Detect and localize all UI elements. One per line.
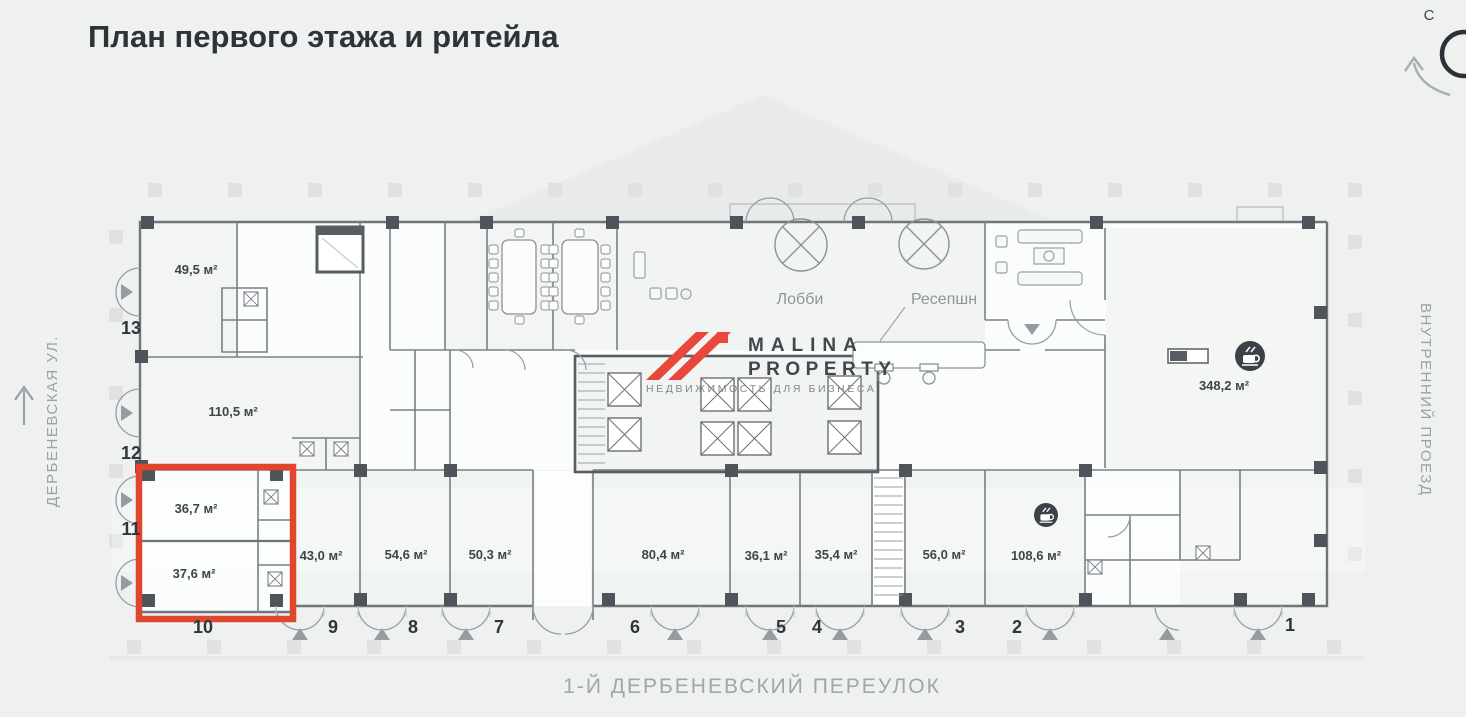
perimeter-column <box>1348 313 1362 327</box>
chair <box>549 245 558 254</box>
wall-column <box>1079 464 1092 477</box>
wall-column <box>725 593 738 606</box>
unit-number-10: 10 <box>193 617 213 637</box>
unit-area-6: 80,4 м² <box>642 547 686 562</box>
cafe-area: 348,2 м² <box>1199 378 1250 393</box>
coffee-cup-icon <box>1034 503 1058 527</box>
perimeter-column <box>287 640 301 654</box>
entrance-door-arc <box>901 606 925 630</box>
unit-number-1: 1 <box>1285 615 1295 635</box>
chair <box>549 287 558 296</box>
entrance-door-arc <box>1258 606 1282 630</box>
entrance-door-arc <box>116 413 140 437</box>
entrance-door-arc <box>675 606 699 630</box>
entrance-triangle <box>121 575 133 591</box>
unit-area-12: 110,5 м² <box>208 404 258 419</box>
entrance-door-arc <box>1026 606 1050 630</box>
chair <box>489 287 498 296</box>
wall-column <box>606 216 619 229</box>
perimeter-column <box>708 183 722 197</box>
chair <box>601 245 610 254</box>
wall-column <box>1302 216 1315 229</box>
entrance-door-arc <box>1155 606 1179 630</box>
floor-plan-canvas: План первого этажа и ритейла С ДЕРБЕНЕВС… <box>0 0 1466 717</box>
perimeter-column <box>109 464 123 478</box>
perimeter-column <box>109 230 123 244</box>
wall-column <box>135 350 148 363</box>
entrance-door-arc <box>358 606 382 630</box>
chair <box>515 316 524 324</box>
perimeter-column <box>927 640 941 654</box>
unit-area-8: 54,6 м² <box>385 547 429 562</box>
wall-column <box>444 464 457 477</box>
chair <box>489 301 498 310</box>
logo-square <box>717 332 728 343</box>
wall-column <box>141 216 154 229</box>
wall-column <box>1079 593 1092 606</box>
perimeter-column <box>1108 183 1122 197</box>
wall-column <box>602 593 615 606</box>
chair <box>489 259 498 268</box>
wall-column <box>480 216 493 229</box>
shaft-wall <box>317 227 363 235</box>
cafe-floor <box>1106 228 1327 468</box>
chair <box>489 245 498 254</box>
entrance-door-arc <box>1234 606 1258 630</box>
wall-column <box>1314 306 1327 319</box>
perimeter-column <box>788 183 802 197</box>
logo-line2: PROPERTY <box>748 359 897 380</box>
compass-icon: С <box>1405 7 1466 95</box>
perimeter-column <box>367 640 381 654</box>
wall-column <box>354 464 367 477</box>
street-label-left: ДЕРБЕНЕВСКАЯ УЛ. <box>44 335 61 507</box>
wall-column <box>386 216 399 229</box>
wall-column <box>1090 216 1103 229</box>
perimeter-column <box>308 183 322 197</box>
unit-area-5: 36,1 м² <box>745 548 789 563</box>
perimeter-column <box>948 183 962 197</box>
unit-area-3: 56,0 м² <box>923 547 967 562</box>
perimeter-column <box>1348 183 1362 197</box>
unit-area-9: 43,0 м² <box>300 548 344 563</box>
wall-column <box>899 464 912 477</box>
perimeter-column <box>847 640 861 654</box>
entrance-door-arc <box>442 606 466 630</box>
entrance-door-arc <box>533 606 593 634</box>
background-wedge <box>470 95 1054 221</box>
street-label-bottom: 1-Й ДЕРБЕНЕВСКИЙ ПЕРЕУЛОК <box>563 674 941 698</box>
street-label-right: ВНУТРЕННИЙ ПРОЕЗД <box>1417 303 1435 496</box>
perimeter-column <box>767 640 781 654</box>
wall-column <box>142 594 155 607</box>
chair <box>575 316 584 324</box>
perimeter-column <box>1348 469 1362 483</box>
wall-column <box>354 593 367 606</box>
perimeter-column <box>1327 640 1341 654</box>
floor-plan: 49,5 м² 110,5 м² 36,7 м² 37,6 м² 43,0 м²… <box>109 183 1365 660</box>
compass-north-label: С <box>1424 7 1435 24</box>
unit-number-12: 12 <box>121 443 141 463</box>
wall-column <box>1314 461 1327 474</box>
wall-column <box>444 593 457 606</box>
entrance-door-arc <box>1050 606 1074 630</box>
wall-column <box>1302 593 1315 606</box>
perimeter-column <box>468 183 482 197</box>
coffee-cup-icon <box>1235 341 1265 371</box>
street-arrow-up <box>15 387 33 425</box>
entrance-door-arc <box>925 606 949 630</box>
chair <box>601 259 610 268</box>
perimeter-column <box>1087 640 1101 654</box>
perimeter-column <box>228 183 242 197</box>
conference-table <box>562 240 598 314</box>
entrance-door-arc <box>382 606 406 630</box>
chair <box>549 273 558 282</box>
unit-area-10: 37,6 м² <box>173 566 217 581</box>
chair <box>489 273 498 282</box>
logo-tagline: НЕДВИЖИМОСТЬ ДЛЯ БИЗНЕСА <box>646 383 876 395</box>
lobby-floor <box>617 223 985 350</box>
perimeter-column <box>447 640 461 654</box>
perimeter-column <box>388 183 402 197</box>
unit-number-4: 4 <box>812 617 822 637</box>
chair <box>515 229 524 237</box>
wall-column <box>725 464 738 477</box>
chair <box>549 301 558 310</box>
entrance-door-arc <box>116 268 140 292</box>
unit-number-8: 8 <box>408 617 418 637</box>
unit-number-2: 2 <box>1012 617 1022 637</box>
unit-area-13: 49,5 м² <box>175 262 219 277</box>
unit-number-3: 3 <box>955 617 965 637</box>
entrance-triangle <box>121 405 133 421</box>
wall-column <box>1234 593 1247 606</box>
wall-column <box>852 216 865 229</box>
entrance-door-arc <box>651 606 675 630</box>
page-title: План первого этажа и ритейла <box>88 19 559 54</box>
perimeter-column <box>548 183 562 197</box>
chair <box>601 273 610 282</box>
unit-area-4: 35,4 м² <box>815 547 859 562</box>
unit-number-7: 7 <box>494 617 504 637</box>
entrance-triangle <box>121 284 133 300</box>
entrance-door-arc <box>840 606 864 630</box>
perimeter-column <box>1167 640 1181 654</box>
right-canopy <box>1237 207 1283 222</box>
unit-number-9: 9 <box>328 617 338 637</box>
wall-column <box>270 594 283 607</box>
entrance-door-arc <box>300 606 324 630</box>
chair <box>575 229 584 237</box>
cafe-counter <box>1168 349 1208 363</box>
perimeter-column <box>148 183 162 197</box>
entrance-door-arc <box>466 606 490 630</box>
perimeter-column <box>607 640 621 654</box>
perimeter-column <box>1247 640 1261 654</box>
perimeter-column <box>1007 640 1021 654</box>
unit-number-6: 6 <box>630 617 640 637</box>
unit-area-2: 108,6 м² <box>1011 548 1062 563</box>
unit-number-11: 11 <box>121 519 140 539</box>
perimeter-column <box>1268 183 1282 197</box>
perimeter-column <box>1188 183 1202 197</box>
unit-area-7: 50,3 м² <box>469 547 513 562</box>
perimeter-column <box>1348 235 1362 249</box>
perimeter-column <box>1348 391 1362 405</box>
chair <box>601 301 610 310</box>
chair <box>549 259 558 268</box>
unit-area-11: 36,7 м² <box>175 501 219 516</box>
entrance-door-arc <box>746 606 770 630</box>
perimeter-column <box>868 183 882 197</box>
conference-table <box>502 240 536 314</box>
wall-column <box>1314 534 1327 547</box>
perimeter-column <box>687 640 701 654</box>
lobby-label: Лобби <box>777 291 824 308</box>
chair <box>601 287 610 296</box>
perimeter-column <box>207 640 221 654</box>
wall-column <box>730 216 743 229</box>
compass-ring <box>1442 32 1466 76</box>
sidewalk-line <box>110 656 1365 660</box>
perimeter-column <box>527 640 541 654</box>
floor-plan-page: План первого этажа и ритейла С ДЕРБЕНЕВС… <box>0 0 1466 717</box>
unit-number-13: 13 <box>121 318 141 338</box>
logo-line1: MALINA <box>748 335 864 356</box>
reception-label: Ресепшн <box>911 291 977 308</box>
perimeter-column <box>127 640 141 654</box>
unit-number-5: 5 <box>776 617 786 637</box>
perimeter-column <box>1028 183 1042 197</box>
perimeter-column <box>628 183 642 197</box>
